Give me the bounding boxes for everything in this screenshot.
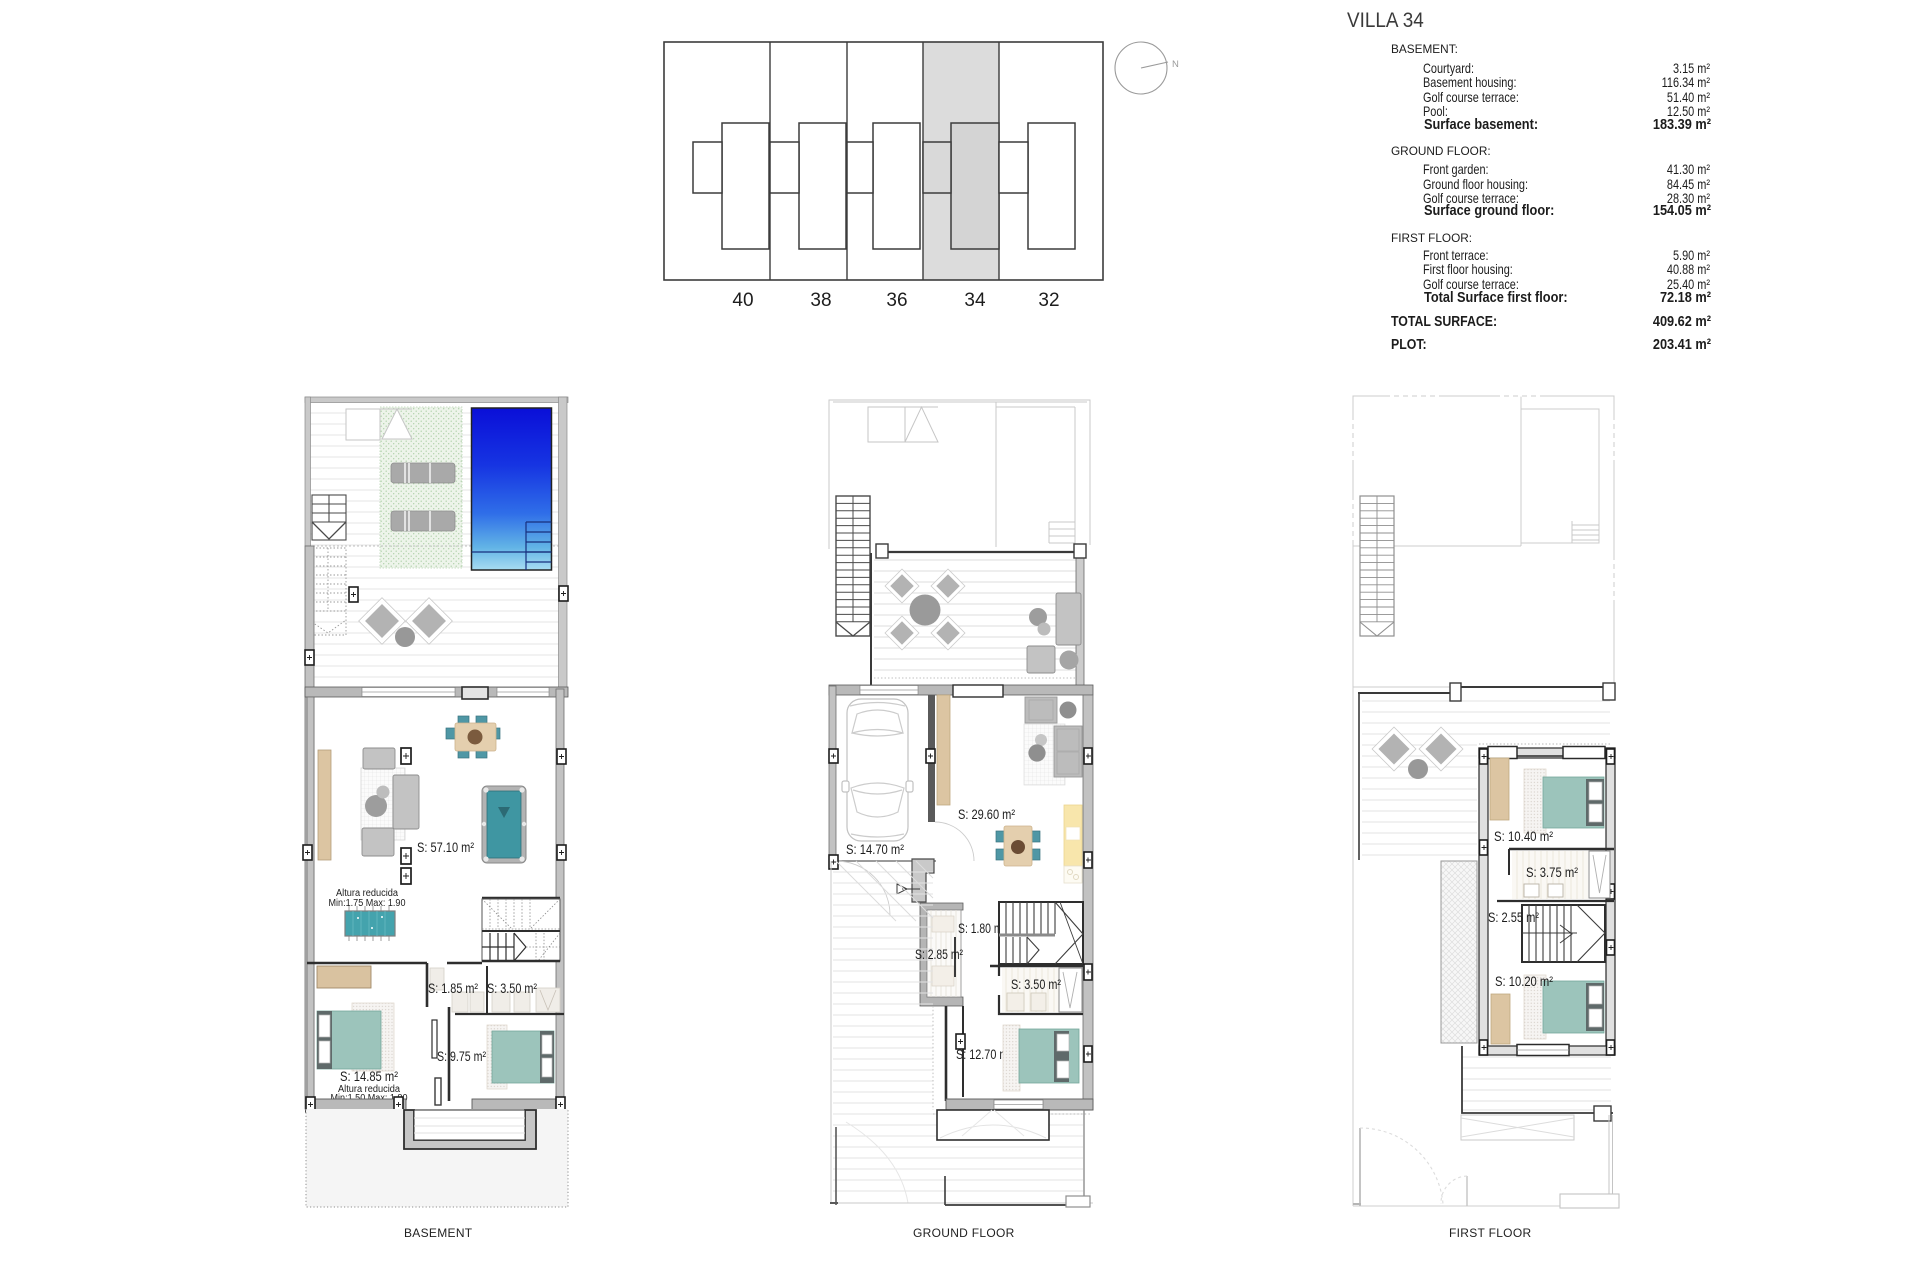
svg-text:S: 29.60 m²: S: 29.60 m² bbox=[958, 807, 1015, 822]
svg-text:Min:1.75 Max: 1.90: Min:1.75 Max: 1.90 bbox=[329, 898, 406, 909]
svg-text:S: 1.85 m²: S: 1.85 m² bbox=[428, 981, 478, 996]
svg-text:S: 3.50 m²: S: 3.50 m² bbox=[1011, 977, 1061, 992]
svg-text:S: 14.70 m²: S: 14.70 m² bbox=[846, 842, 904, 857]
svg-text:S: 10.40 m²: S: 10.40 m² bbox=[1494, 829, 1553, 844]
svg-text:S: 9.75 m²: S: 9.75 m² bbox=[437, 1049, 486, 1064]
svg-text:S: 10.20 m²: S: 10.20 m² bbox=[1495, 974, 1553, 989]
svg-text:S: 2.55 m²: S: 2.55 m² bbox=[1488, 910, 1539, 925]
svg-text:S: 3.75 m²: S: 3.75 m² bbox=[1526, 865, 1578, 880]
svg-text:S: 57.10 m²: S: 57.10 m² bbox=[417, 840, 474, 855]
svg-text:S: 14.85 m²: S: 14.85 m² bbox=[340, 1069, 398, 1084]
svg-text:S: 3.50 m²: S: 3.50 m² bbox=[487, 981, 537, 996]
